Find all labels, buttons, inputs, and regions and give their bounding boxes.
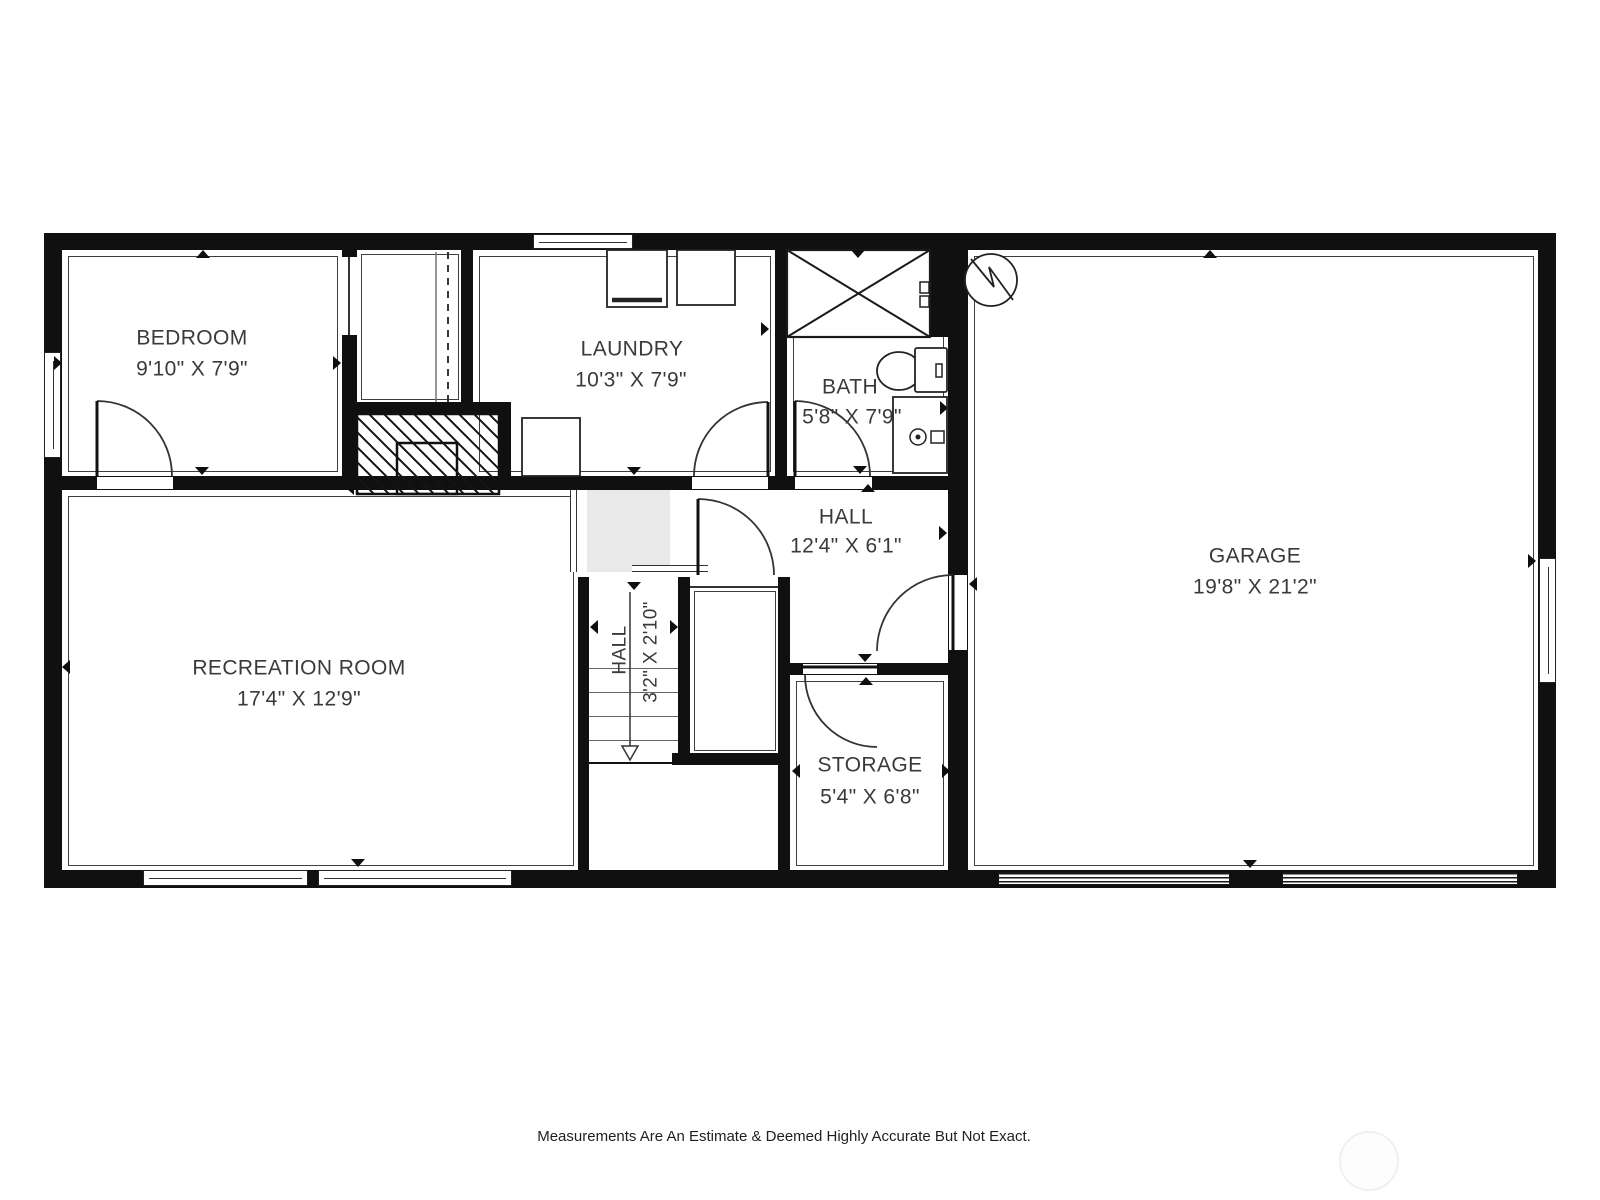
- wall-storage-left: [778, 577, 790, 870]
- stair-railing-vertical: [570, 490, 577, 572]
- opening-marker: [859, 677, 873, 685]
- storage-door-sill: [803, 663, 877, 675]
- pocket-door-gap: [342, 257, 357, 335]
- opening-marker: [54, 356, 62, 370]
- floor-plan: BEDROOM 9'10" X 7'9" LAUNDRY 10'3" X 7'9…: [0, 0, 1600, 1200]
- staircase: [589, 577, 678, 765]
- room-label: LAUNDRY: [581, 336, 684, 361]
- recreation-floor-outline: [68, 496, 574, 866]
- room-label: BATH: [822, 374, 878, 399]
- opening-marker: [792, 764, 800, 778]
- room-dimensions: 5'4" X 6'8": [820, 784, 920, 809]
- recreation-window-right: [318, 870, 512, 886]
- understair-closet-opening: [690, 586, 778, 588]
- wall-garage-lower: [948, 650, 968, 870]
- room-dimensions: 3'2" X 2'10": [641, 601, 664, 703]
- garage-entry-door: [877, 575, 953, 651]
- room-dimensions: 12'4" X 6'1": [790, 533, 902, 558]
- garage-door-sill: [948, 575, 968, 650]
- wall-closet-bottom2: [672, 753, 790, 765]
- opening-marker: [62, 660, 70, 674]
- recreation-window-left: [143, 870, 308, 886]
- understair-closet-outline: [694, 591, 776, 751]
- opening-marker: [196, 250, 210, 258]
- wall-closet-stairs: [678, 577, 690, 765]
- bedroom-door-sill: [97, 476, 173, 490]
- opening-marker: [942, 764, 950, 778]
- opening-marker: [940, 401, 948, 415]
- room-label: GARAGE: [1209, 543, 1301, 568]
- opening-marker: [590, 620, 598, 634]
- room-label: BEDROOM: [136, 325, 247, 350]
- opening-marker: [969, 577, 977, 591]
- pocket-door-leaf: [348, 257, 350, 335]
- room-dimensions: 5'8" X 7'9": [802, 404, 902, 429]
- room-label: RECREATION ROOM: [192, 655, 405, 680]
- wall-exterior-left: [44, 233, 62, 888]
- stair-tread: [589, 692, 678, 693]
- room-label: STORAGE: [817, 752, 922, 777]
- room-dimensions: 9'10" X 7'9": [136, 356, 248, 381]
- stair-bottom-edge: [589, 762, 678, 764]
- wall-garage-upper: [948, 250, 968, 575]
- disclaimer-text: Measurements Are An Estimate & Deemed Hi…: [537, 1128, 1031, 1145]
- opening-marker: [1528, 554, 1536, 568]
- opening-marker: [351, 859, 365, 867]
- opening-marker: [1203, 250, 1217, 258]
- wall-shower-chunk: [930, 250, 948, 337]
- opening-marker: [463, 322, 471, 336]
- room-dimensions: 19'8" X 21'2": [1193, 574, 1317, 599]
- wall-stairs-left: [578, 577, 589, 870]
- stair-tread: [589, 716, 678, 717]
- opening-marker: [627, 467, 641, 475]
- opening-marker: [195, 467, 209, 475]
- stair-tread: [589, 668, 678, 669]
- garage-vehicle-door-left: [998, 872, 1230, 885]
- opening-marker: [670, 620, 678, 634]
- opening-marker: [333, 356, 341, 370]
- laundry-floor-outline: [479, 256, 771, 472]
- laundry-door-sill: [692, 476, 768, 490]
- opening-marker: [861, 484, 875, 492]
- hall-landing: [587, 490, 670, 572]
- room-dimensions: 17'4" X 12'9": [237, 686, 361, 711]
- opening-marker: [627, 582, 641, 590]
- bath-floor-outline: [793, 256, 944, 472]
- laundry-window: [533, 234, 633, 249]
- opening-marker: [1243, 860, 1257, 868]
- garage-window: [1539, 558, 1556, 683]
- wall-closet-bottom: [342, 402, 511, 414]
- stair-tread: [589, 740, 678, 741]
- room-dimensions: 10'3" X 7'9": [575, 367, 687, 392]
- room-label: HALL: [819, 504, 873, 529]
- garage-vehicle-door-right: [1282, 872, 1518, 885]
- wall-laundry-bath: [775, 250, 787, 476]
- watermark-circle: [1339, 1131, 1399, 1191]
- opening-marker: [851, 250, 865, 258]
- opening-marker: [346, 481, 354, 495]
- wall-exterior-top: [44, 233, 1556, 250]
- bedroom-closet-outline: [361, 254, 459, 400]
- opening-marker: [939, 526, 947, 540]
- room-label: HALL: [610, 625, 633, 674]
- hall-door: [698, 499, 774, 575]
- opening-marker: [853, 466, 867, 474]
- opening-marker: [761, 322, 769, 336]
- opening-marker: [858, 654, 872, 662]
- stair-railing-horizontal: [632, 565, 708, 572]
